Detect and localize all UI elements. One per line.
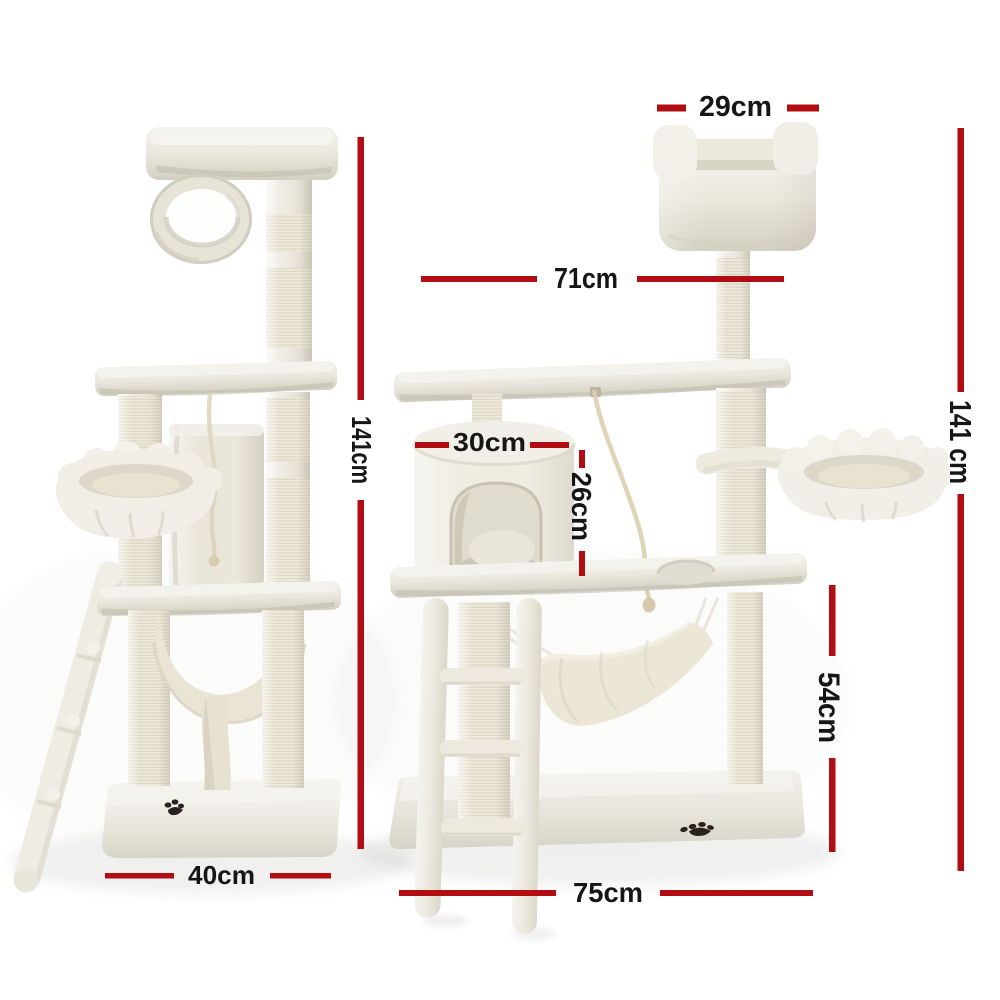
svg-text:26cm: 26cm xyxy=(566,472,597,541)
svg-text:40cm: 40cm xyxy=(188,860,255,890)
svg-text:54cm: 54cm xyxy=(812,672,845,743)
svg-text:30cm: 30cm xyxy=(453,427,526,457)
svg-text:71cm: 71cm xyxy=(554,263,618,295)
svg-text:75cm: 75cm xyxy=(573,877,643,908)
svg-text:141 cm: 141 cm xyxy=(943,400,978,484)
svg-text:141cm: 141cm xyxy=(346,416,377,484)
svg-text:29cm: 29cm xyxy=(699,91,772,123)
